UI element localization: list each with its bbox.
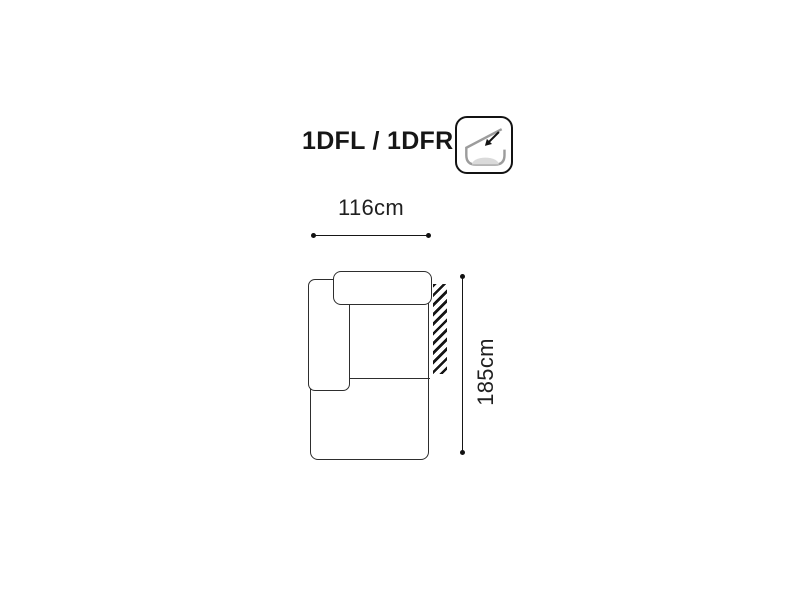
reclining-backrest-icon-art <box>457 118 511 172</box>
module-code-title: 1DFL / 1DFR <box>302 129 453 153</box>
dimension-endpoint-dot <box>460 450 465 455</box>
dimension-endpoint-dot <box>311 233 316 238</box>
reclining-backrest-icon <box>455 116 513 174</box>
spec-sheet: 1DFL / 1DFR 116cm 185cm <box>0 0 800 600</box>
dimension-endpoint-dot <box>460 274 465 279</box>
connection-side-hatch <box>433 284 447 374</box>
cushion-shape <box>472 158 499 165</box>
width-dimension-line <box>313 235 429 236</box>
height-dimension-line <box>462 276 463 453</box>
height-dimension-label: 185cm <box>473 312 499 432</box>
sofa-backrest <box>333 271 432 305</box>
width-dimension-label: 116cm <box>311 196 431 220</box>
seat-front-divider-line <box>350 378 430 379</box>
dimension-endpoint-dot <box>426 233 431 238</box>
